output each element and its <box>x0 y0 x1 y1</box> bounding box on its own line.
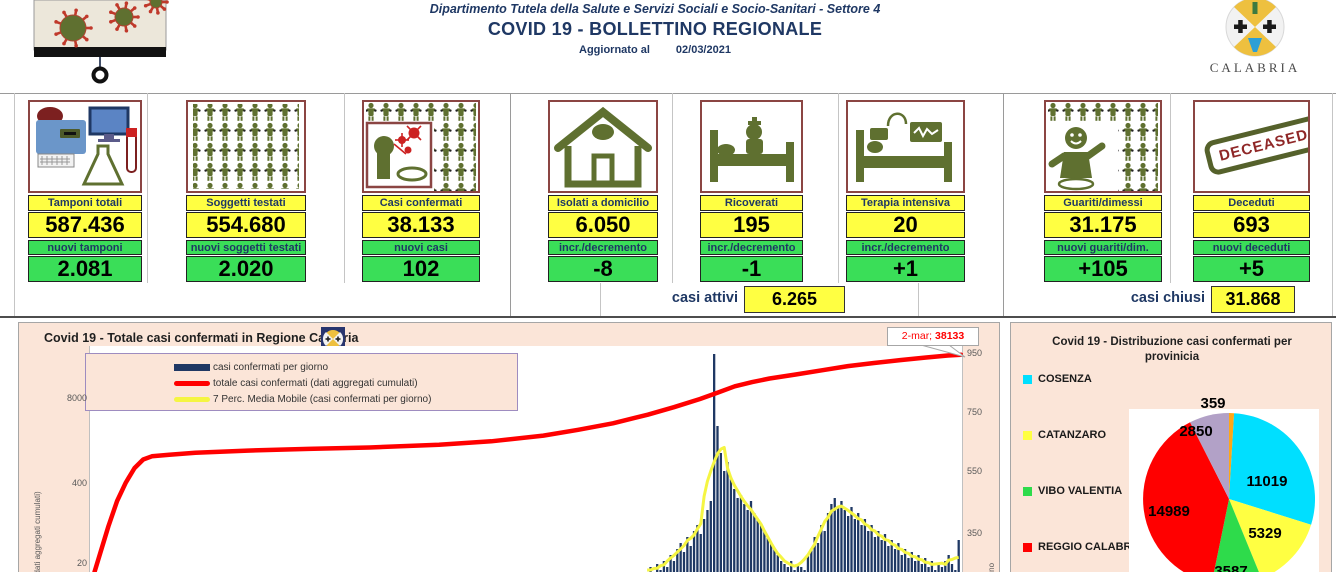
legend-label: REGGIO CALABRIA <box>1038 541 1143 553</box>
active-cases-label: casi attivi <box>540 290 738 306</box>
latest-value-annotation: 2-mar; 38133 <box>887 327 979 346</box>
stat-sub-value: +1 <box>846 256 965 282</box>
pie-legend-item-cosenza: COSENZA <box>1023 373 1092 385</box>
left-axis-tick: 8000 <box>61 393 87 403</box>
divider <box>918 283 919 316</box>
legend-label: VIBO VALENTIA <box>1038 485 1122 497</box>
recovered-person-icon <box>1044 100 1162 193</box>
stat-label: Deceduti <box>1193 195 1310 211</box>
stat-value: 31.175 <box>1044 212 1162 238</box>
header: Dipartimento Tutela della Salute e Servi… <box>340 2 970 56</box>
pie-chart-title: Covid 19 - Distribuzione casi confermati… <box>1047 335 1297 365</box>
legend-label: 7 Perc. Media Mobile (casi confermati pe… <box>213 394 431 405</box>
hospital-bed-icon <box>700 100 803 193</box>
stat-card-ricoverati: Ricoverati 195 incr./decremento -1 <box>700 100 803 282</box>
annotation-value: 38133 <box>935 330 964 342</box>
stat-label: Terapia intensiva <box>846 195 965 211</box>
divider <box>672 93 673 283</box>
right-axis-tick: 750 <box>967 407 982 417</box>
projector-screen-virus-logo <box>28 0 173 85</box>
tested-crowd-icon <box>186 100 306 193</box>
stat-sub-value: -8 <box>548 256 658 282</box>
stat-value: 195 <box>700 212 803 238</box>
left-axis-tick: 20 <box>61 558 87 568</box>
stat-sub-value: +105 <box>1044 256 1162 282</box>
vibo-valentia-swatch <box>1023 487 1032 496</box>
annotation-date: 2-mar; <box>902 330 932 342</box>
stat-sub-label: nuovi guariti/dim. <box>1044 240 1162 255</box>
stat-sub-value: +5 <box>1193 256 1310 282</box>
moving-avg-series-swatch <box>174 397 210 402</box>
cosenza-swatch <box>1023 375 1032 384</box>
deceased-stamp-icon: DECEASED <box>1193 100 1310 193</box>
stat-sub-label: nuovi deceduti <box>1193 240 1310 255</box>
stat-card-casi-confermati: Casi confermati 38.133 nuovi casi 102 <box>362 100 480 282</box>
pie-value-crotone: 2850 <box>1166 423 1226 440</box>
divider <box>0 316 1336 318</box>
stat-label: Isolati a domicilio <box>548 195 658 211</box>
updated-line: Aggiornato al02/03/2021 <box>340 44 970 56</box>
deceased-stamp-text: DECEASED <box>1203 114 1310 176</box>
divider <box>344 93 345 283</box>
confirmed-cases-chart-panel: Covid 19 - Totale casi confermati in Reg… <box>18 322 1000 572</box>
updated-label: Aggiornato al <box>579 44 650 56</box>
updated-date: 02/03/2021 <box>676 44 731 56</box>
stat-sub-value: 2.081 <box>28 256 142 282</box>
pie-legend-item-reggio-calabria: REGGIO CALABRIA <box>1023 541 1143 553</box>
calabria-logo-caption: CALABRIA <box>1205 60 1305 76</box>
calabria-region-logo <box>1205 0 1305 60</box>
divider <box>1332 93 1333 316</box>
house-icon <box>548 100 658 193</box>
combo-chart-legend: casi confermati per giorno totale casi c… <box>85 353 518 411</box>
divider <box>1170 93 1171 283</box>
stat-value: 587.436 <box>28 212 142 238</box>
pie-value-catanzaro: 5329 <box>1235 525 1295 542</box>
legend-label: COSENZA <box>1038 373 1092 385</box>
annotation-pointer <box>915 345 971 359</box>
cumulative-series-swatch <box>174 381 210 386</box>
stat-value: 554.680 <box>186 212 306 238</box>
legend-label: totale casi confermati (dati aggregati c… <box>213 378 418 389</box>
stat-card-deceduti: DECEASED Deceduti 693 nuovi deceduti +5 <box>1193 100 1310 282</box>
stat-label: Tamponi totali <box>28 195 142 211</box>
divider <box>0 93 1336 94</box>
stat-card-terapia-intensiva: Terapia intensiva 20 incr./decremento +1 <box>846 100 965 282</box>
legend-label: CATANZARO <box>1038 429 1106 441</box>
pie-value-reggio-calabria: 14989 <box>1139 503 1199 520</box>
stat-sub-value: -1 <box>700 256 803 282</box>
pie-legend-item-catanzaro: CATANZARO <box>1023 429 1106 441</box>
stat-label: Guariti/dimessi <box>1044 195 1162 211</box>
divider <box>147 93 148 283</box>
closed-cases-value: 31.868 <box>1211 286 1295 313</box>
pie-legend-item-vibo-valentia: VIBO VALENTIA <box>1023 485 1122 497</box>
stat-sub-value: 102 <box>362 256 480 282</box>
stat-sub-label: incr./decremento <box>548 240 658 255</box>
stat-value: 20 <box>846 212 965 238</box>
stat-label: Ricoverati <box>700 195 803 211</box>
active-cases-value: 6.265 <box>744 286 845 313</box>
stat-card-soggetti-testati: Soggetti testati 554.680 nuovi soggetti … <box>186 100 306 282</box>
divider <box>14 93 15 316</box>
catanzaro-swatch <box>1023 431 1032 440</box>
reggio-calabria-swatch <box>1023 543 1032 552</box>
stat-sub-label: nuovi tamponi <box>28 240 142 255</box>
right-axis-tick: 550 <box>967 466 982 476</box>
stat-sub-label: nuovi soggetti testati <box>186 240 306 255</box>
left-axis-label: totale casi confermati (dati aggregati c… <box>33 325 42 572</box>
page-title: COVID 19 - BOLLETTINO REGIONALE <box>340 19 970 40</box>
stat-label: Casi confermati <box>362 195 480 211</box>
stat-value: 38.133 <box>362 212 480 238</box>
legend-item: 7 Perc. Media Mobile (casi confermati pe… <box>86 391 517 407</box>
left-axis-tick: 400 <box>61 478 87 488</box>
divider <box>1003 93 1004 316</box>
stat-card-isolati: Isolati a domicilio 6.050 incr./decremen… <box>548 100 658 282</box>
lab-equipment-icon <box>28 100 142 193</box>
icu-bed-icon <box>846 100 965 193</box>
combo-chart-title: Covid 19 - Totale casi confermati in Reg… <box>44 331 358 345</box>
stat-value: 6.050 <box>548 212 658 238</box>
department-line: Dipartimento Tutela della Salute e Servi… <box>340 2 970 16</box>
pie-value-vibo-valentia: 3587 <box>1201 563 1261 572</box>
divider <box>510 93 511 316</box>
stat-sub-value: 2.020 <box>186 256 306 282</box>
stat-sub-label: incr./decremento <box>846 240 965 255</box>
stat-sub-label: incr./decremento <box>700 240 803 255</box>
legend-item: totale casi confermati (dati aggregati c… <box>86 375 517 391</box>
pie-value-cosenza: 11019 <box>1237 473 1297 490</box>
bar-series-swatch <box>174 364 210 371</box>
covid-bulletin-page: Dipartimento Tutela della Salute e Servi… <box>0 0 1336 572</box>
pie-value-altro: 359 <box>1183 395 1243 412</box>
province-distribution-panel: Covid 19 - Distribuzione casi confermati… <box>1010 322 1332 572</box>
right-axis-label: casi confermati per giorno <box>987 325 996 572</box>
stat-value: 693 <box>1193 212 1310 238</box>
divider <box>838 93 839 283</box>
right-axis-tick: 350 <box>967 528 982 538</box>
stat-label: Soggetti testati <box>186 195 306 211</box>
stat-card-guariti: Guariti/dimessi 31.175 nuovi guariti/dim… <box>1044 100 1162 282</box>
legend-label: casi confermati per giorno <box>213 362 328 373</box>
legend-item: casi confermati per giorno <box>86 359 517 375</box>
stat-sub-label: nuovi casi <box>362 240 480 255</box>
closed-cases-label: casi chiusi <box>1000 290 1205 306</box>
infected-person-icon <box>362 100 480 193</box>
stat-card-tamponi: Tamponi totali 587.436 nuovi tamponi 2.0… <box>28 100 142 282</box>
